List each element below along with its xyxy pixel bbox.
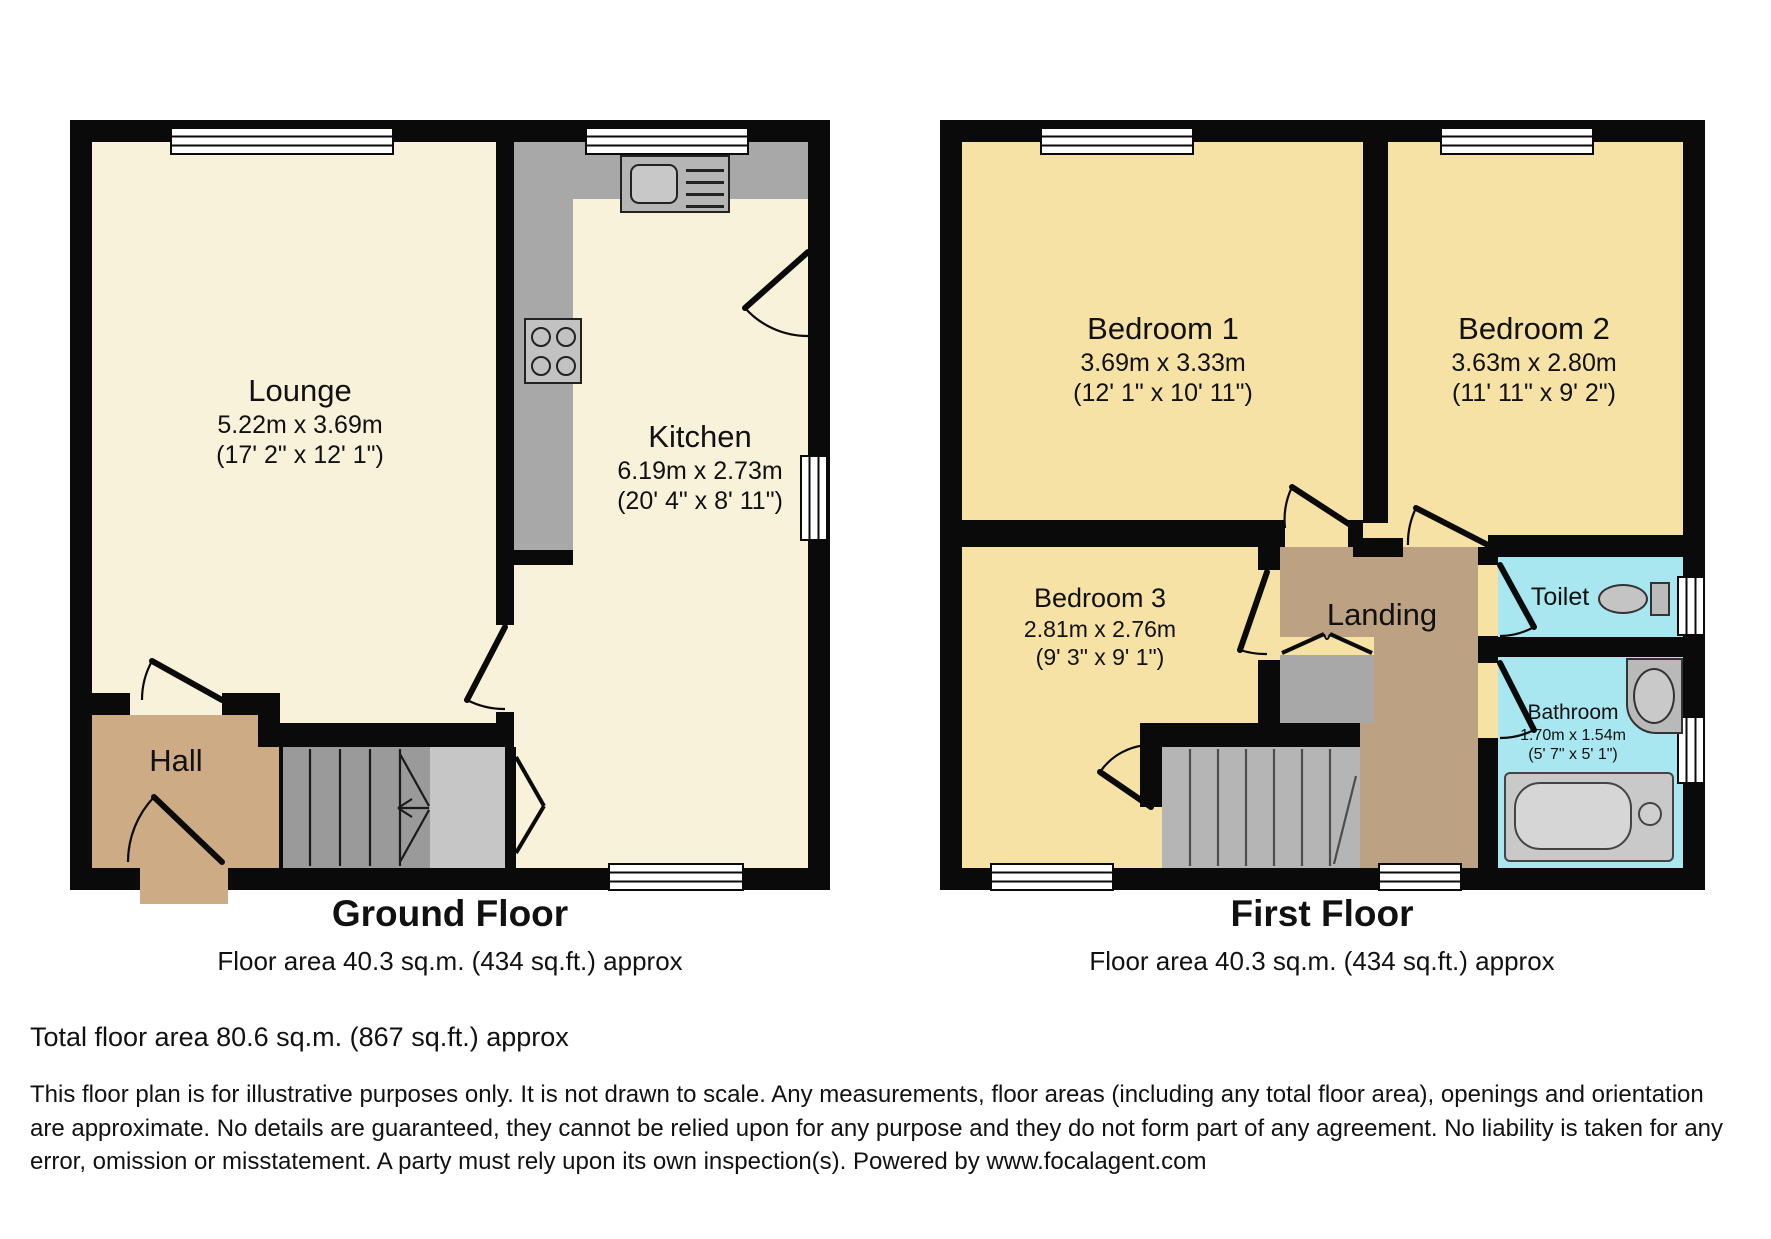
bedroom2-window — [1440, 127, 1594, 155]
sink-drainer-line — [686, 205, 724, 208]
landing-cupboard — [1280, 655, 1374, 723]
hob-burner — [556, 356, 576, 376]
bedroom1-window — [1040, 127, 1194, 155]
landing-threshold-stub — [1353, 538, 1403, 557]
total-floor-area: Total floor area 80.6 sq.m. (867 sq.ft.)… — [30, 1022, 569, 1053]
bed3-landing-wall — [1258, 542, 1280, 570]
landing-bathrooms-wall — [1478, 547, 1498, 565]
room-dim-imperial: (12' 1" x 10' 11") — [1073, 378, 1253, 409]
room-name: Lounge — [216, 372, 384, 410]
front-door-recess — [140, 868, 228, 904]
first-stairs — [1162, 747, 1360, 868]
room-hall — [92, 715, 280, 868]
counter-end-cap — [514, 550, 573, 565]
kitchen-side-window — [800, 455, 828, 541]
room-name: Toilet — [1531, 582, 1589, 613]
room-dim-metric: 5.22m x 3.69m — [216, 410, 384, 441]
room-dim-metric: 2.81m x 2.76m — [1024, 615, 1176, 643]
landing-window — [1378, 863, 1462, 891]
ground-floor-title: Ground Floor — [332, 893, 568, 935]
room-dim-imperial: (17' 2" x 12' 1") — [216, 440, 384, 471]
room-dim-imperial: (5' 7" x 5' 1") — [1520, 745, 1626, 765]
bathroom-label: Bathroom 1.70m x 1.54m (5' 7" x 5' 1") — [1520, 700, 1626, 765]
bathtub-drain — [1638, 802, 1662, 826]
room-dim-metric: 3.63m x 2.80m — [1451, 348, 1616, 379]
understairs-cupboard — [430, 747, 505, 868]
landing-bathrooms-wall — [1478, 636, 1498, 663]
hob-burner — [531, 356, 551, 376]
bed1-bed2-wall — [1363, 120, 1388, 523]
kitchen-top-window — [585, 127, 749, 155]
bathroom-sink-basin — [1633, 668, 1675, 724]
room-dim-imperial: (20' 4" x 8' 11") — [617, 486, 783, 517]
room-dim-metric: 3.69m x 3.33m — [1073, 348, 1253, 379]
hob-burner — [531, 327, 551, 347]
room-name: Bathroom — [1520, 700, 1626, 726]
stairwell-top-wall — [1140, 723, 1360, 747]
lounge-label: Lounge 5.22m x 3.69m (17' 2" x 12' 1") — [216, 372, 384, 471]
room-dim-metric: 6.19m x 2.73m — [617, 456, 783, 487]
first-floor-title: First Floor — [1231, 893, 1414, 935]
room-name: Bedroom 3 — [1024, 582, 1176, 615]
bedroom3-label: Bedroom 3 2.81m x 2.76m (9' 3" x 9' 1") — [1024, 582, 1176, 671]
sink-drainer-line — [686, 193, 724, 196]
cupboard-wall — [505, 747, 516, 868]
bed2-bottom-wall — [1488, 535, 1683, 557]
landing-bathrooms-wall — [1478, 738, 1498, 868]
hall-wall-left — [92, 693, 130, 715]
first-floor-area: Floor area 40.3 sq.m. (434 sq.ft.) appro… — [1089, 946, 1554, 977]
room-dim-imperial: (11' 11" x 9' 2") — [1451, 378, 1616, 409]
room-landing — [1374, 637, 1478, 723]
toilet-label: Toilet — [1531, 582, 1589, 613]
bathtub — [1504, 772, 1674, 862]
sink-drainer-line — [686, 169, 724, 172]
hall-label: Hall — [149, 742, 202, 780]
toilet-cistern — [1650, 582, 1670, 616]
hob-burner — [556, 327, 576, 347]
bedroom2-label: Bedroom 2 3.63m x 2.80m (11' 11" x 9' 2"… — [1451, 310, 1616, 409]
bedroom1-label: Bedroom 1 3.69m x 3.33m (12' 1" x 10' 11… — [1073, 310, 1253, 409]
hall-stairs-divider — [279, 747, 283, 868]
room-name: Kitchen — [617, 418, 783, 456]
toilet-window — [1677, 576, 1705, 636]
bed1-bottom-wall — [962, 520, 1285, 547]
room-name: Bedroom 1 — [1073, 310, 1253, 348]
stairs-top-wall — [280, 723, 514, 747]
room-landing — [1360, 723, 1478, 868]
disclaimer-text: This floor plan is for illustrative purp… — [30, 1078, 1745, 1179]
lounge-window — [170, 127, 394, 155]
lounge-kitchen-wall — [496, 120, 514, 625]
kitchen-label: Kitchen 6.19m x 2.73m (20' 4" x 8' 11") — [617, 418, 783, 517]
room-name: Landing — [1327, 596, 1437, 634]
bathroom-sink — [1626, 658, 1683, 734]
floorplan-page: Lounge 5.22m x 3.69m (17' 2" x 12' 1") K… — [0, 0, 1771, 1239]
sink-drainer-line — [686, 181, 724, 184]
kitchen-sink — [620, 155, 730, 213]
room-dim-imperial: (9' 3" x 9' 1") — [1024, 643, 1176, 671]
bed3-stairwell-wall — [1140, 747, 1162, 807]
ground-floor-area: Floor area 40.3 sq.m. (434 sq.ft.) appro… — [217, 946, 682, 977]
landing-label: Landing — [1327, 596, 1437, 634]
kitchen-bottom-window — [608, 863, 744, 891]
bedroom3-window — [990, 863, 1114, 891]
ground-stairs — [283, 747, 430, 868]
toilet-bowl — [1598, 584, 1648, 614]
bathtub-inner — [1514, 782, 1632, 850]
sink-basin — [630, 164, 678, 204]
kitchen-hob — [524, 318, 582, 384]
hall-corner-wall — [258, 693, 280, 747]
room-name: Bedroom 2 — [1451, 310, 1616, 348]
room-dim-metric: 1.70m x 1.54m — [1520, 726, 1626, 746]
hall-wall-right — [222, 693, 258, 715]
toilet-bathroom-wall — [1498, 637, 1683, 657]
room-name: Hall — [149, 742, 202, 780]
toilet-fixture — [1598, 580, 1674, 620]
